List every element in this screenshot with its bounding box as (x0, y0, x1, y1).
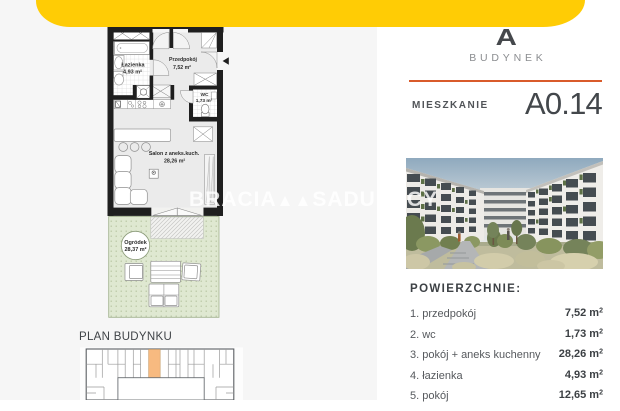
svg-text:7,52 m²: 7,52 m² (173, 65, 191, 71)
svg-text:Przedpokój: Przedpokój (169, 57, 198, 63)
svg-text:Łazienka: Łazienka (121, 63, 145, 69)
svg-text:WC: WC (201, 92, 210, 98)
svg-text:4,93 m²: 4,93 m² (123, 69, 142, 76)
svg-text:28,26 m²: 28,26 m² (164, 159, 185, 165)
svg-text:28,37 m²: 28,37 m² (124, 246, 146, 253)
svg-text:1,73 m²: 1,73 m² (196, 98, 213, 104)
svg-text:Ogródek: Ogródek (124, 240, 148, 246)
svg-text:Salon z aneks.kuch.: Salon z aneks.kuch. (149, 151, 200, 157)
